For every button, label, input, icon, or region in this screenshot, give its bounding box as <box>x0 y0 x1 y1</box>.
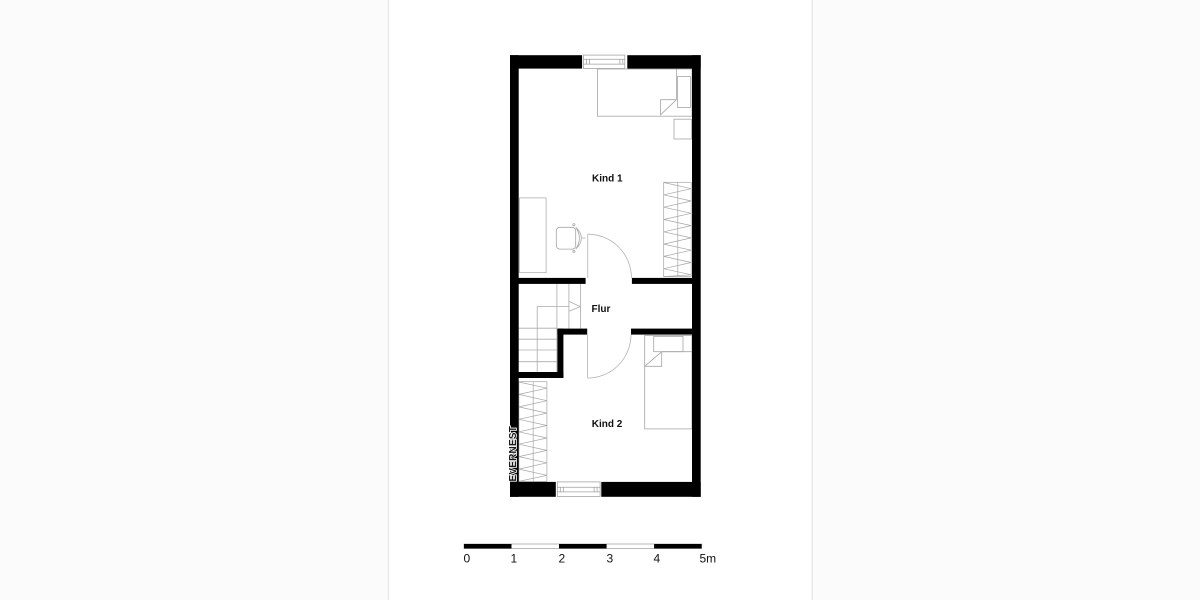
svg-text:3: 3 <box>607 552 614 566</box>
svg-text:Kind 2: Kind 2 <box>592 419 623 430</box>
svg-text:5m: 5m <box>700 552 717 566</box>
svg-text:0: 0 <box>464 552 471 566</box>
svg-text:Kind 1: Kind 1 <box>592 174 623 185</box>
svg-text:4: 4 <box>654 552 661 566</box>
svg-text:EVERNEST: EVERNEST <box>508 426 519 482</box>
svg-text:Flur: Flur <box>592 304 611 315</box>
svg-text:2: 2 <box>559 552 566 566</box>
svg-text:1: 1 <box>511 552 518 566</box>
